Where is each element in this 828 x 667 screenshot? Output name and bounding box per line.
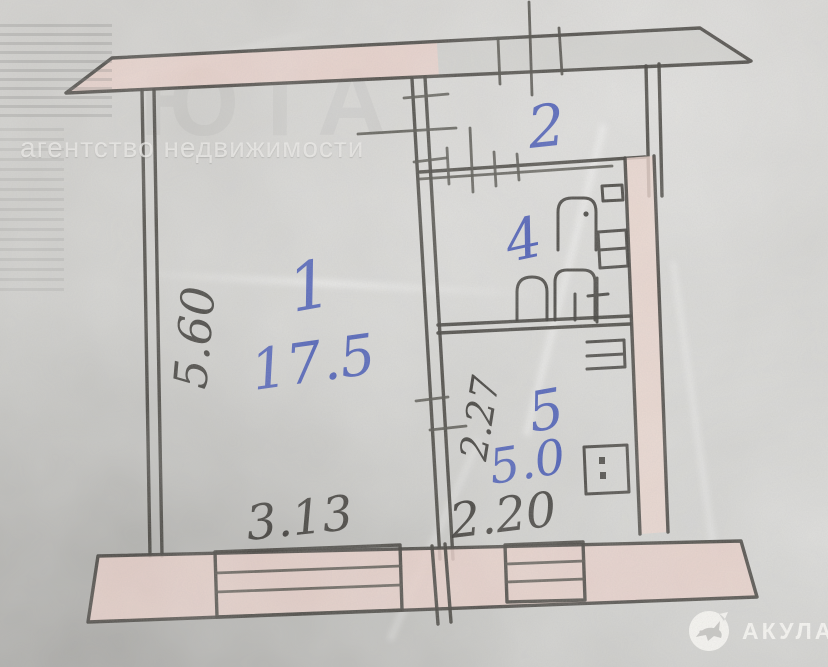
water-pipe — [588, 278, 608, 322]
agency-watermark-text: агентство недвижимости — [20, 132, 440, 164]
room-5-area: 5.0 — [485, 429, 569, 496]
brand-watermark: АКУЛА — [686, 608, 828, 654]
bottom-wall — [88, 541, 757, 624]
top-wall — [66, 28, 751, 93]
floor-plan: 5.60 2.27 3.13 2.20 1 17.5 2 4 5 5.0 — [0, 0, 828, 667]
right-wall — [625, 156, 668, 534]
barcode-watermark — [0, 24, 112, 120]
shark-icon — [686, 608, 732, 654]
bathroom-fixtures — [584, 340, 629, 494]
room-4-number: 4 — [498, 205, 547, 276]
stove — [517, 270, 595, 320]
brand-name-text: АКУЛА — [742, 618, 828, 645]
toilet — [584, 445, 629, 494]
radiator — [587, 340, 625, 369]
dimension-left: 5.60 — [163, 284, 226, 391]
room-1-area: 17.5 — [247, 322, 380, 404]
sink — [598, 185, 628, 268]
room-2-number: 2 — [523, 90, 568, 162]
dimension-bottom-left: 3.13 — [243, 485, 355, 552]
room4-room5-wall — [438, 316, 630, 333]
room-1-number: 1 — [282, 245, 337, 328]
bathtub — [558, 198, 596, 250]
scanned-floor-plan-photo: ЮТА — [0, 0, 828, 667]
